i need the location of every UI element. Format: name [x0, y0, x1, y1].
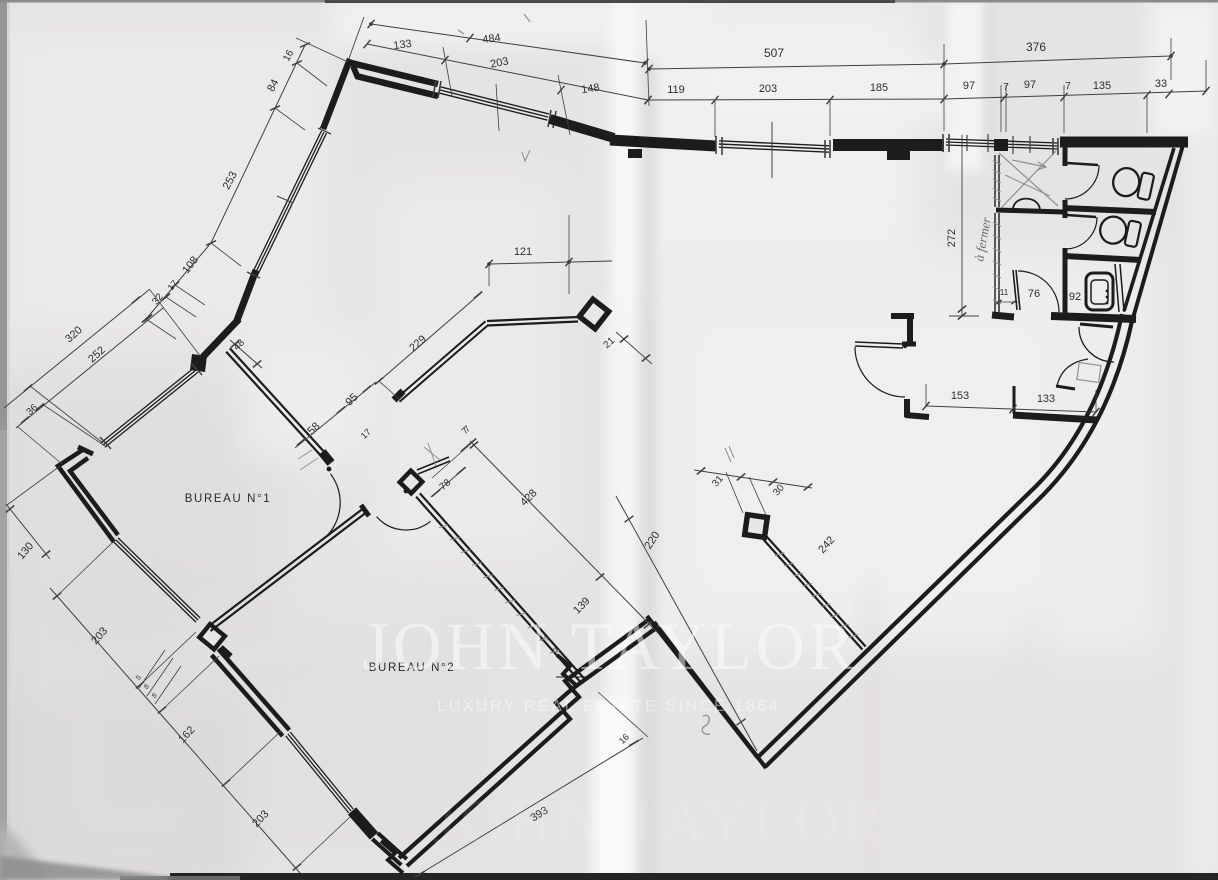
- svg-text:LUXURY REAL ESTATE SINCE 1864: LUXURY REAL ESTATE SINCE 1864: [437, 698, 780, 715]
- svg-text:121: 121: [514, 246, 532, 258]
- svg-text:7: 7: [1003, 82, 1009, 93]
- svg-text:BUREAU N°1: BUREAU N°1: [185, 493, 271, 505]
- svg-text:484: 484: [482, 32, 502, 46]
- svg-text:97: 97: [1024, 79, 1036, 91]
- svg-text:153: 153: [951, 390, 969, 402]
- svg-text:376: 376: [1026, 40, 1046, 54]
- svg-text:185: 185: [870, 82, 888, 94]
- svg-text:92: 92: [1069, 291, 1081, 303]
- svg-text:119: 119: [667, 84, 685, 96]
- svg-text:11: 11: [1000, 288, 1009, 297]
- svg-text:135: 135: [1093, 80, 1111, 92]
- svg-text:507: 507: [764, 46, 784, 60]
- svg-text:76: 76: [1028, 288, 1040, 300]
- svg-text:JOHN TAYLOR: JOHN TAYLOR: [432, 788, 887, 856]
- svg-text:7: 7: [1065, 81, 1071, 92]
- svg-text:JOHN TAYLOR: JOHN TAYLOR: [362, 608, 857, 684]
- svg-text:133: 133: [1037, 393, 1055, 405]
- svg-text:33: 33: [1155, 78, 1167, 90]
- svg-text:272: 272: [946, 229, 958, 247]
- svg-text:97: 97: [963, 80, 975, 92]
- svg-text:203: 203: [759, 83, 777, 95]
